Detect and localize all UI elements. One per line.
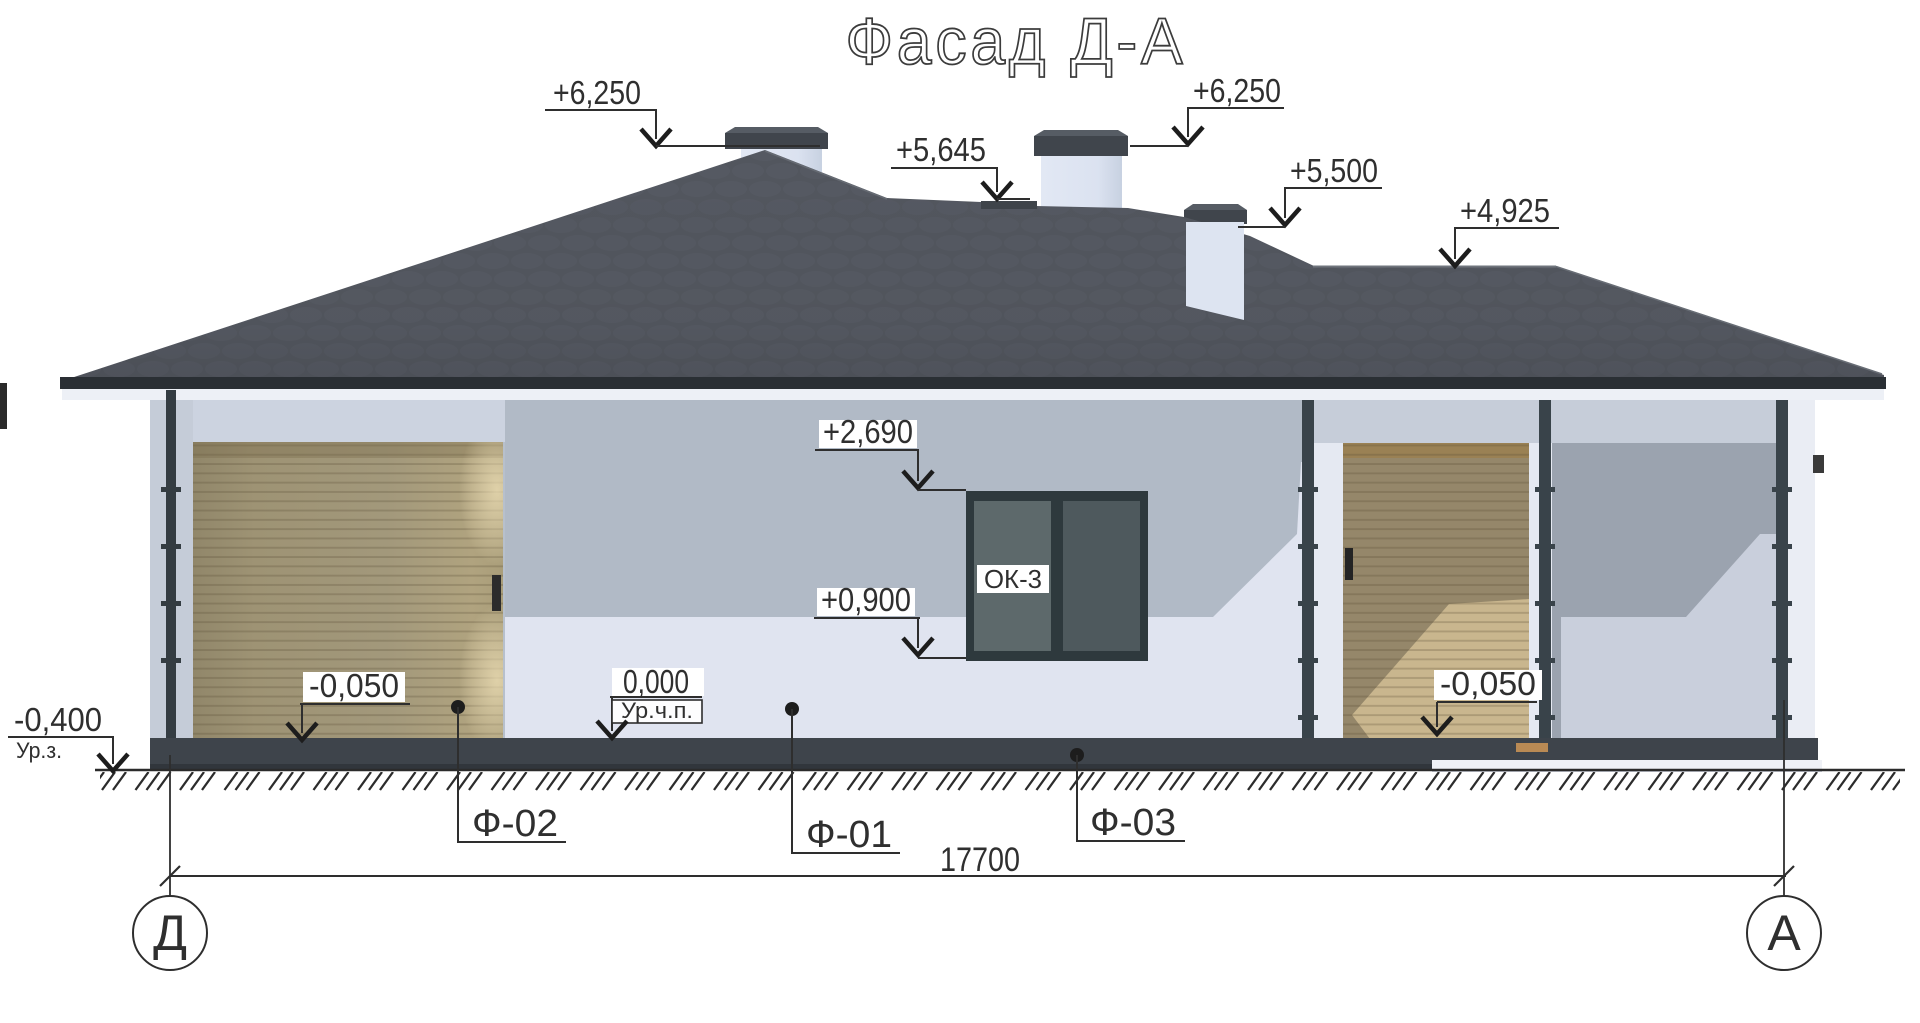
svg-text:17700: 17700 bbox=[940, 841, 1020, 879]
svg-text:+6,250: +6,250 bbox=[1193, 72, 1281, 109]
svg-text:Ур.з.: Ур.з. bbox=[16, 738, 62, 763]
svg-text:Ф-01: Ф-01 bbox=[806, 814, 892, 856]
svg-text:Ур.ч.п.: Ур.ч.п. bbox=[621, 698, 693, 723]
svg-text:+5,645: +5,645 bbox=[896, 131, 986, 168]
svg-text:-0,050: -0,050 bbox=[1440, 665, 1536, 702]
svg-text:+0,900: +0,900 bbox=[821, 581, 911, 618]
svg-text:-0,050: -0,050 bbox=[309, 667, 399, 704]
svg-text:0,000: 0,000 bbox=[623, 663, 689, 700]
svg-text:+5,500: +5,500 bbox=[1290, 152, 1378, 189]
svg-text:-0,400: -0,400 bbox=[14, 701, 102, 738]
svg-text:Ф-02: Ф-02 bbox=[472, 803, 558, 845]
svg-text:Фасад Д-А: Фасад Д-А bbox=[846, 4, 1187, 78]
svg-text:Д: Д bbox=[153, 905, 187, 961]
svg-text:Ф-03: Ф-03 bbox=[1090, 802, 1176, 844]
svg-text:ОК-3: ОК-3 bbox=[984, 564, 1042, 594]
svg-text:А: А bbox=[1767, 905, 1801, 961]
svg-text:+4,925: +4,925 bbox=[1460, 192, 1550, 229]
svg-text:+2,690: +2,690 bbox=[823, 413, 913, 450]
svg-text:+6,250: +6,250 bbox=[553, 74, 641, 111]
